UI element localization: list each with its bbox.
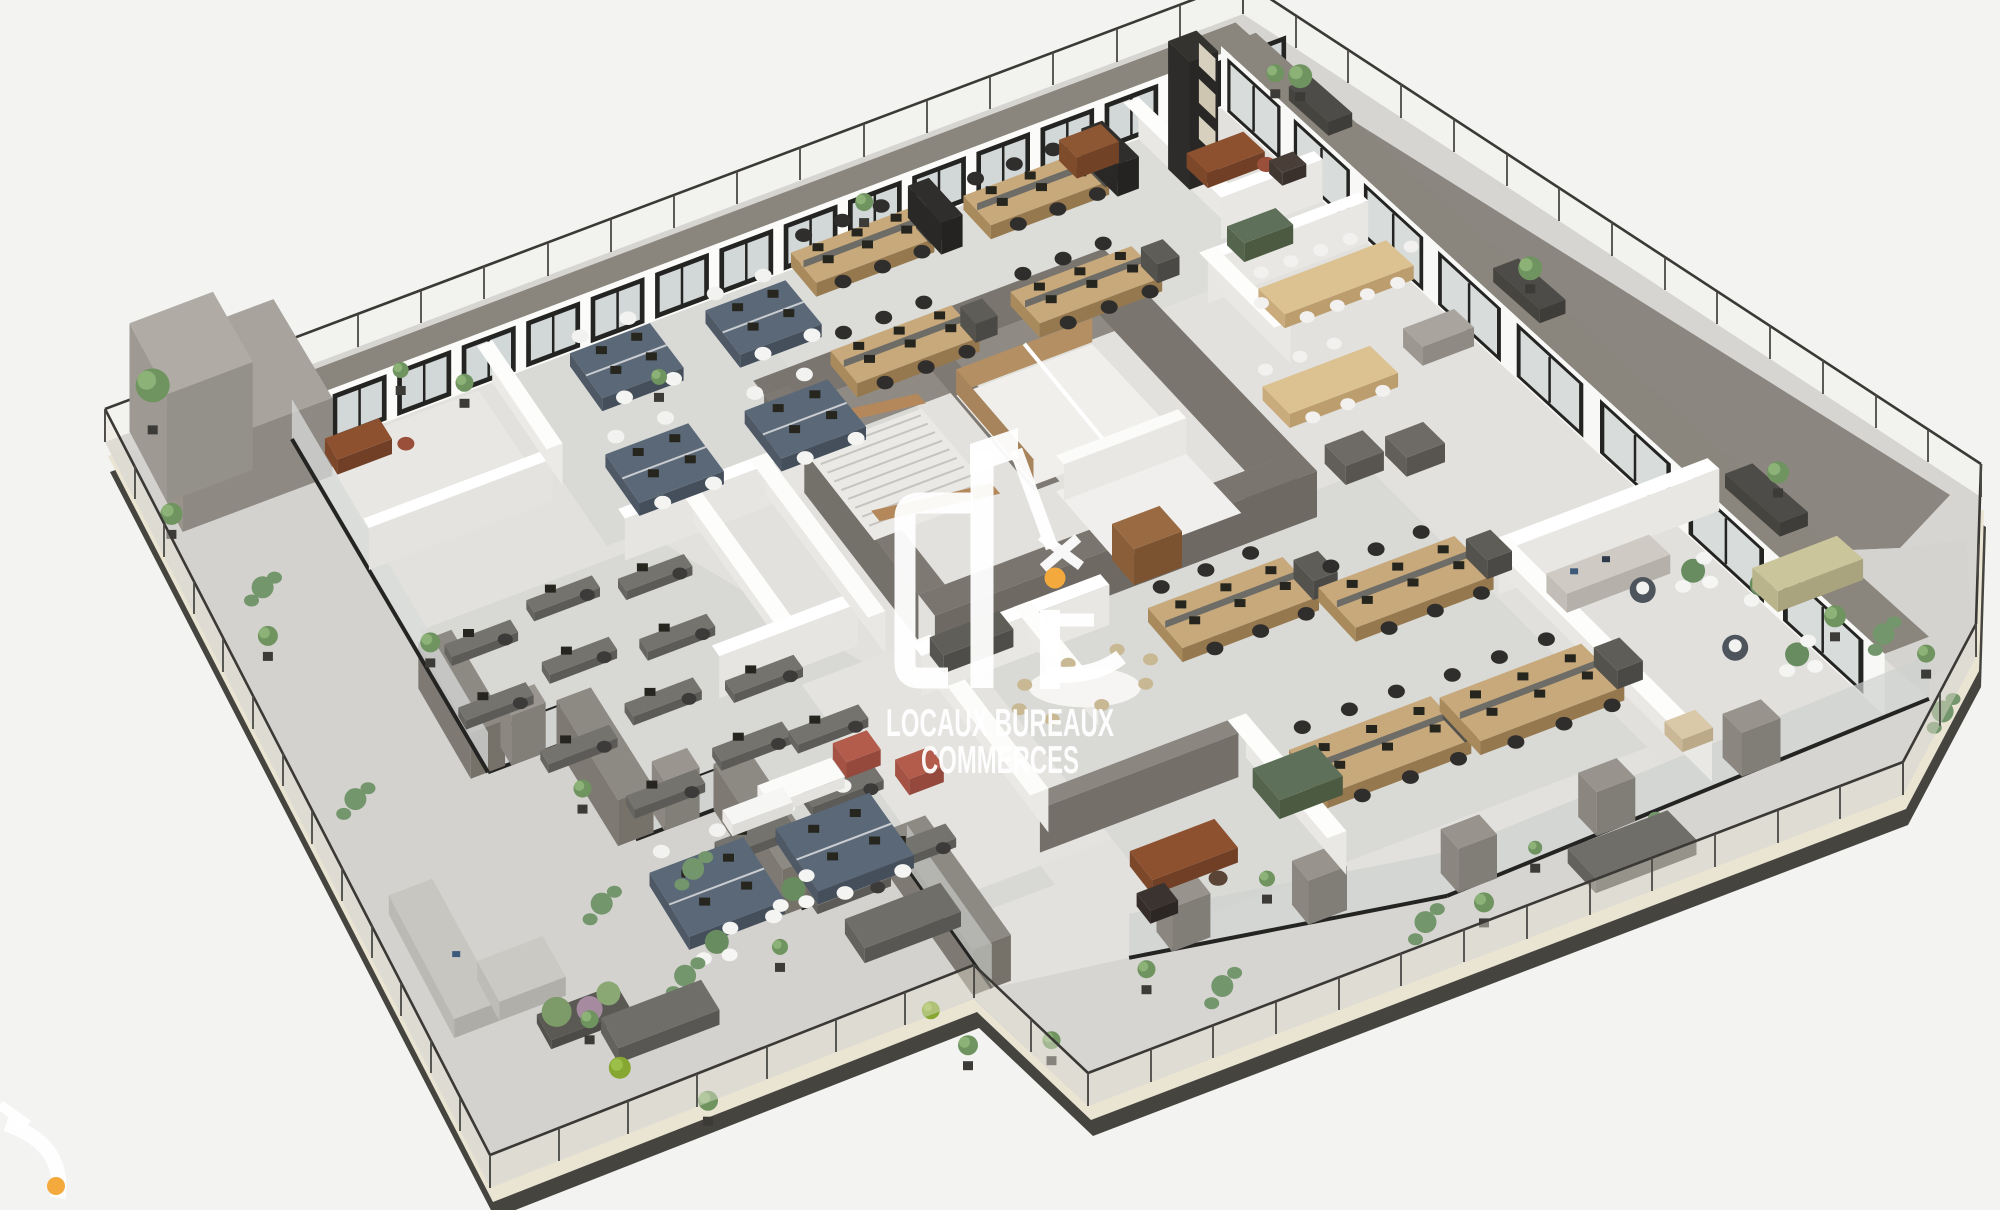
svg-text:COMMERCES: COMMERCES [921, 739, 1079, 782]
